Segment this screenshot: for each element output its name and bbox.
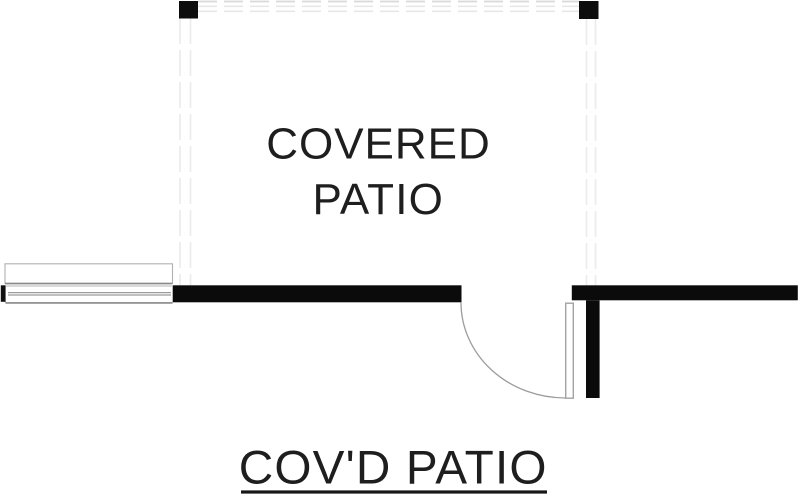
svg-text:COV'D PATIO: COV'D PATIO xyxy=(239,442,548,495)
svg-text:PATIO: PATIO xyxy=(313,175,445,224)
svg-text:COVERED: COVERED xyxy=(266,120,491,169)
